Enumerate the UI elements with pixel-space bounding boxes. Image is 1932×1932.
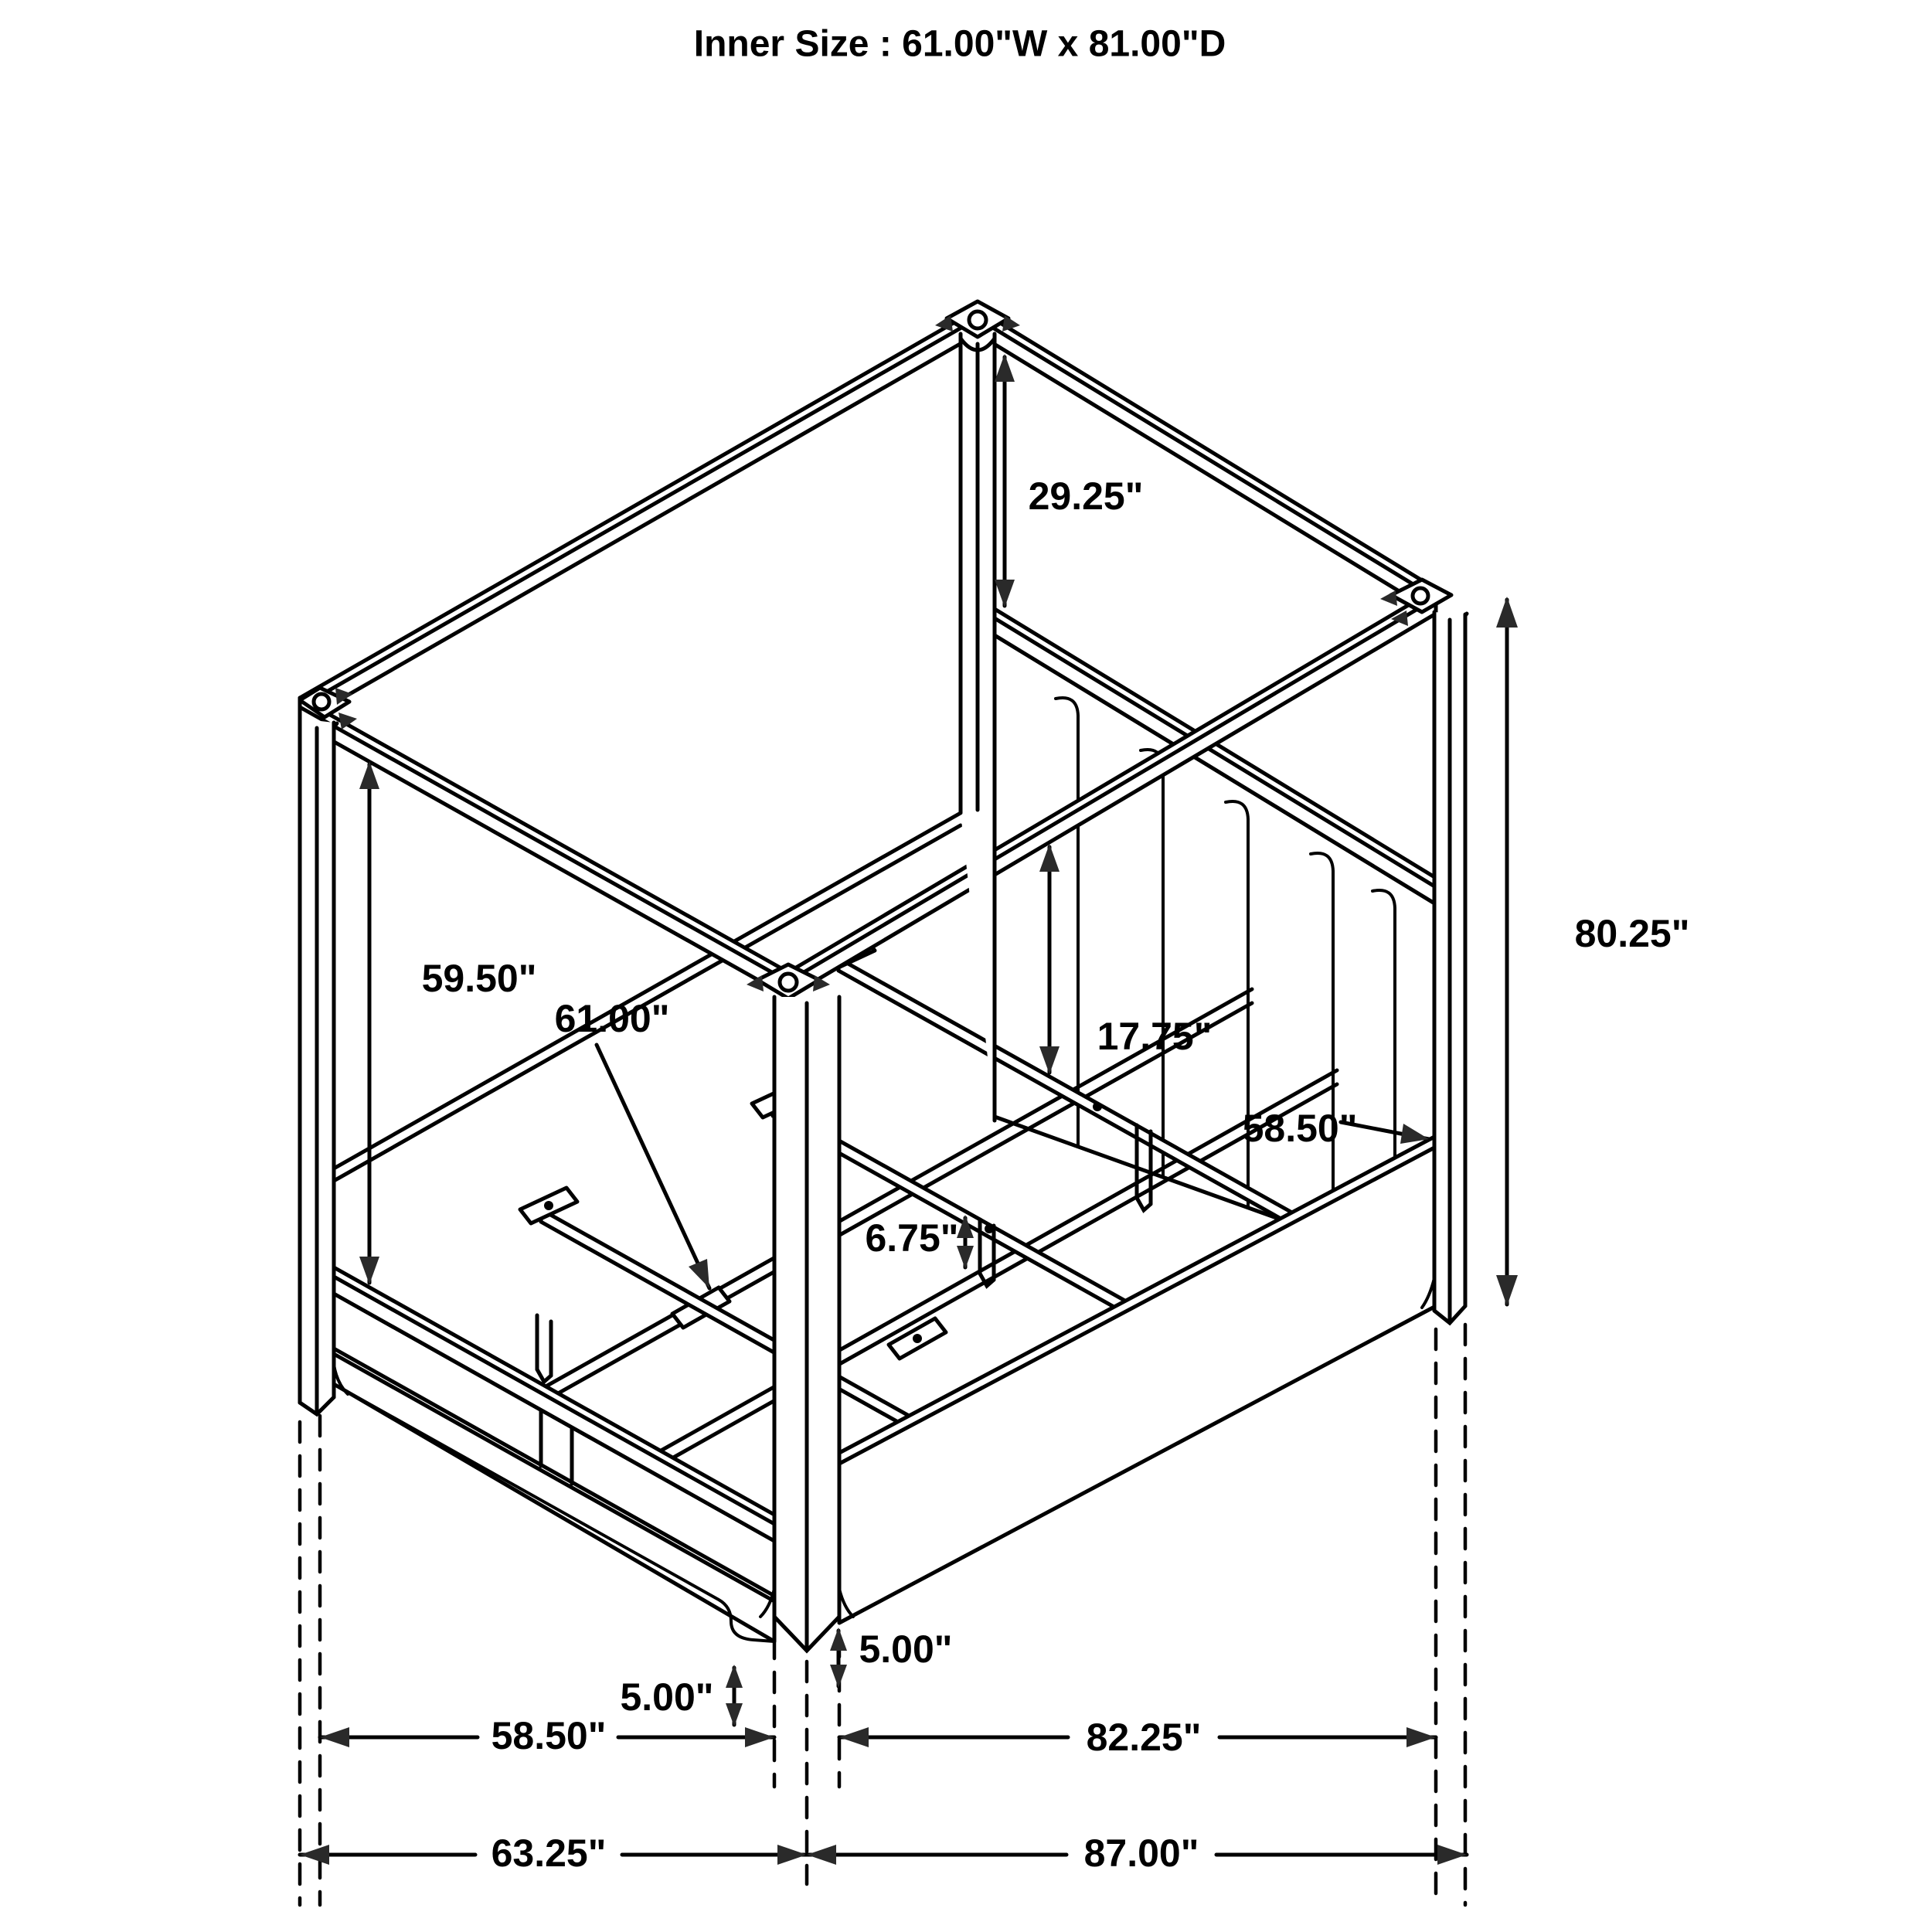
- back-post: [961, 334, 995, 1121]
- dim-label-foot-height-right: 5.00": [859, 1627, 952, 1672]
- diagram-title: Inner Size : 61.00"W x 81.00"D: [694, 23, 1226, 66]
- dim-label-canopy-to-headboard: 29.25": [1029, 474, 1144, 519]
- bed-line-drawing: [0, 0, 1932, 1932]
- dim-label-rail-height: 17.75": [1097, 1014, 1213, 1059]
- dim-label-side-rail-length: 82.25": [1087, 1715, 1202, 1760]
- dim-label-slat-length: 61.00": [555, 996, 670, 1041]
- dim-label-post-clearance: 59.50": [422, 956, 537, 1001]
- canopy-bed-dimension-diagram: Inner Size : 61.00"W x 81.00"D 29.25" 80…: [0, 0, 1932, 1932]
- footboard: [334, 1267, 774, 1641]
- dim-label-overall-depth: 87.00": [1084, 1831, 1199, 1876]
- dim-label-footboard-width: 58.50": [492, 1713, 607, 1758]
- dim-label-overall-width: 63.25": [492, 1831, 607, 1876]
- dim-label-overall-height: 80.25": [1575, 911, 1690, 956]
- side-rail: [839, 1136, 1436, 1623]
- dim-label-foot-height-left: 5.00": [620, 1675, 713, 1719]
- dim-label-leg-height: 6.75": [865, 1216, 958, 1260]
- dim-label-side-rail-top: 58.50": [1243, 1106, 1358, 1151]
- front-post: [760, 997, 853, 1651]
